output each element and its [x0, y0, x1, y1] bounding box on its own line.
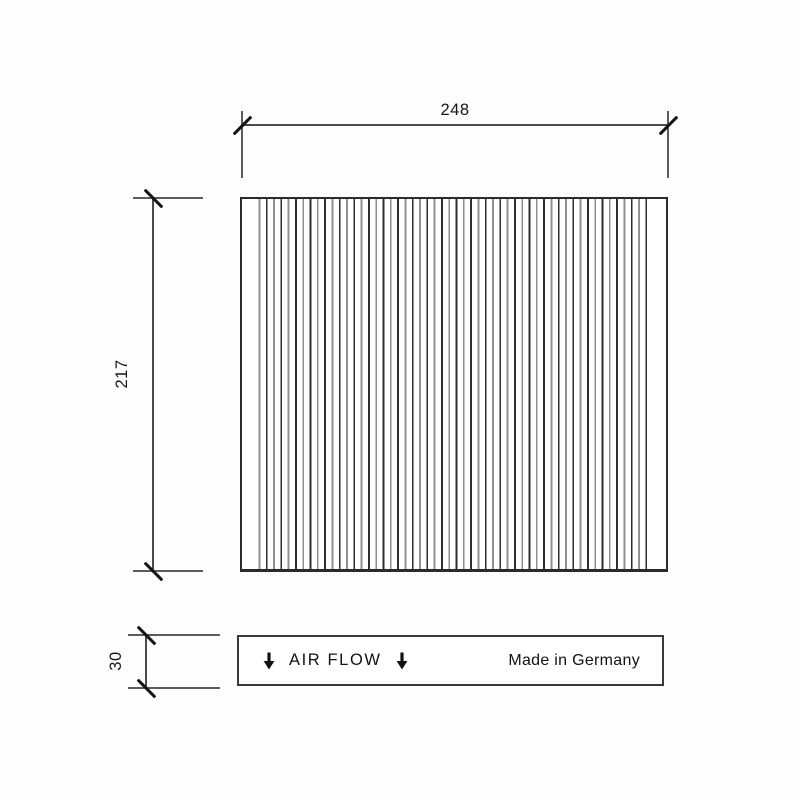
height-extension-line-top	[133, 197, 203, 199]
width-extension-line-left	[241, 111, 243, 178]
depth-dimension-label: 30	[106, 621, 126, 701]
width-extension-line-right	[667, 111, 669, 178]
air-flow-group: AIR FLOW	[263, 651, 408, 670]
filter-front-view	[240, 197, 668, 572]
air-flow-label: AIR FLOW	[289, 651, 382, 670]
height-dimension-label: 217	[112, 334, 132, 414]
air-flow-down-arrow-right-icon	[396, 652, 408, 670]
filter-technical-drawing: 248 217 30 AIR FLOW Made in Germany	[0, 0, 800, 800]
height-dimension-line	[152, 198, 154, 571]
width-dimension-line	[242, 124, 668, 126]
depth-extension-line-top	[128, 634, 220, 636]
made-in-germany-label: Made in Germany	[508, 652, 640, 670]
air-flow-box: AIR FLOW Made in Germany	[237, 635, 664, 686]
filter-pleats	[253, 199, 652, 569]
air-flow-down-arrow-left-icon	[263, 652, 275, 670]
depth-dimension-line	[145, 635, 147, 688]
width-dimension-label: 248	[242, 101, 668, 120]
height-extension-line-bottom	[133, 570, 203, 572]
depth-extension-line-bottom	[128, 687, 220, 689]
